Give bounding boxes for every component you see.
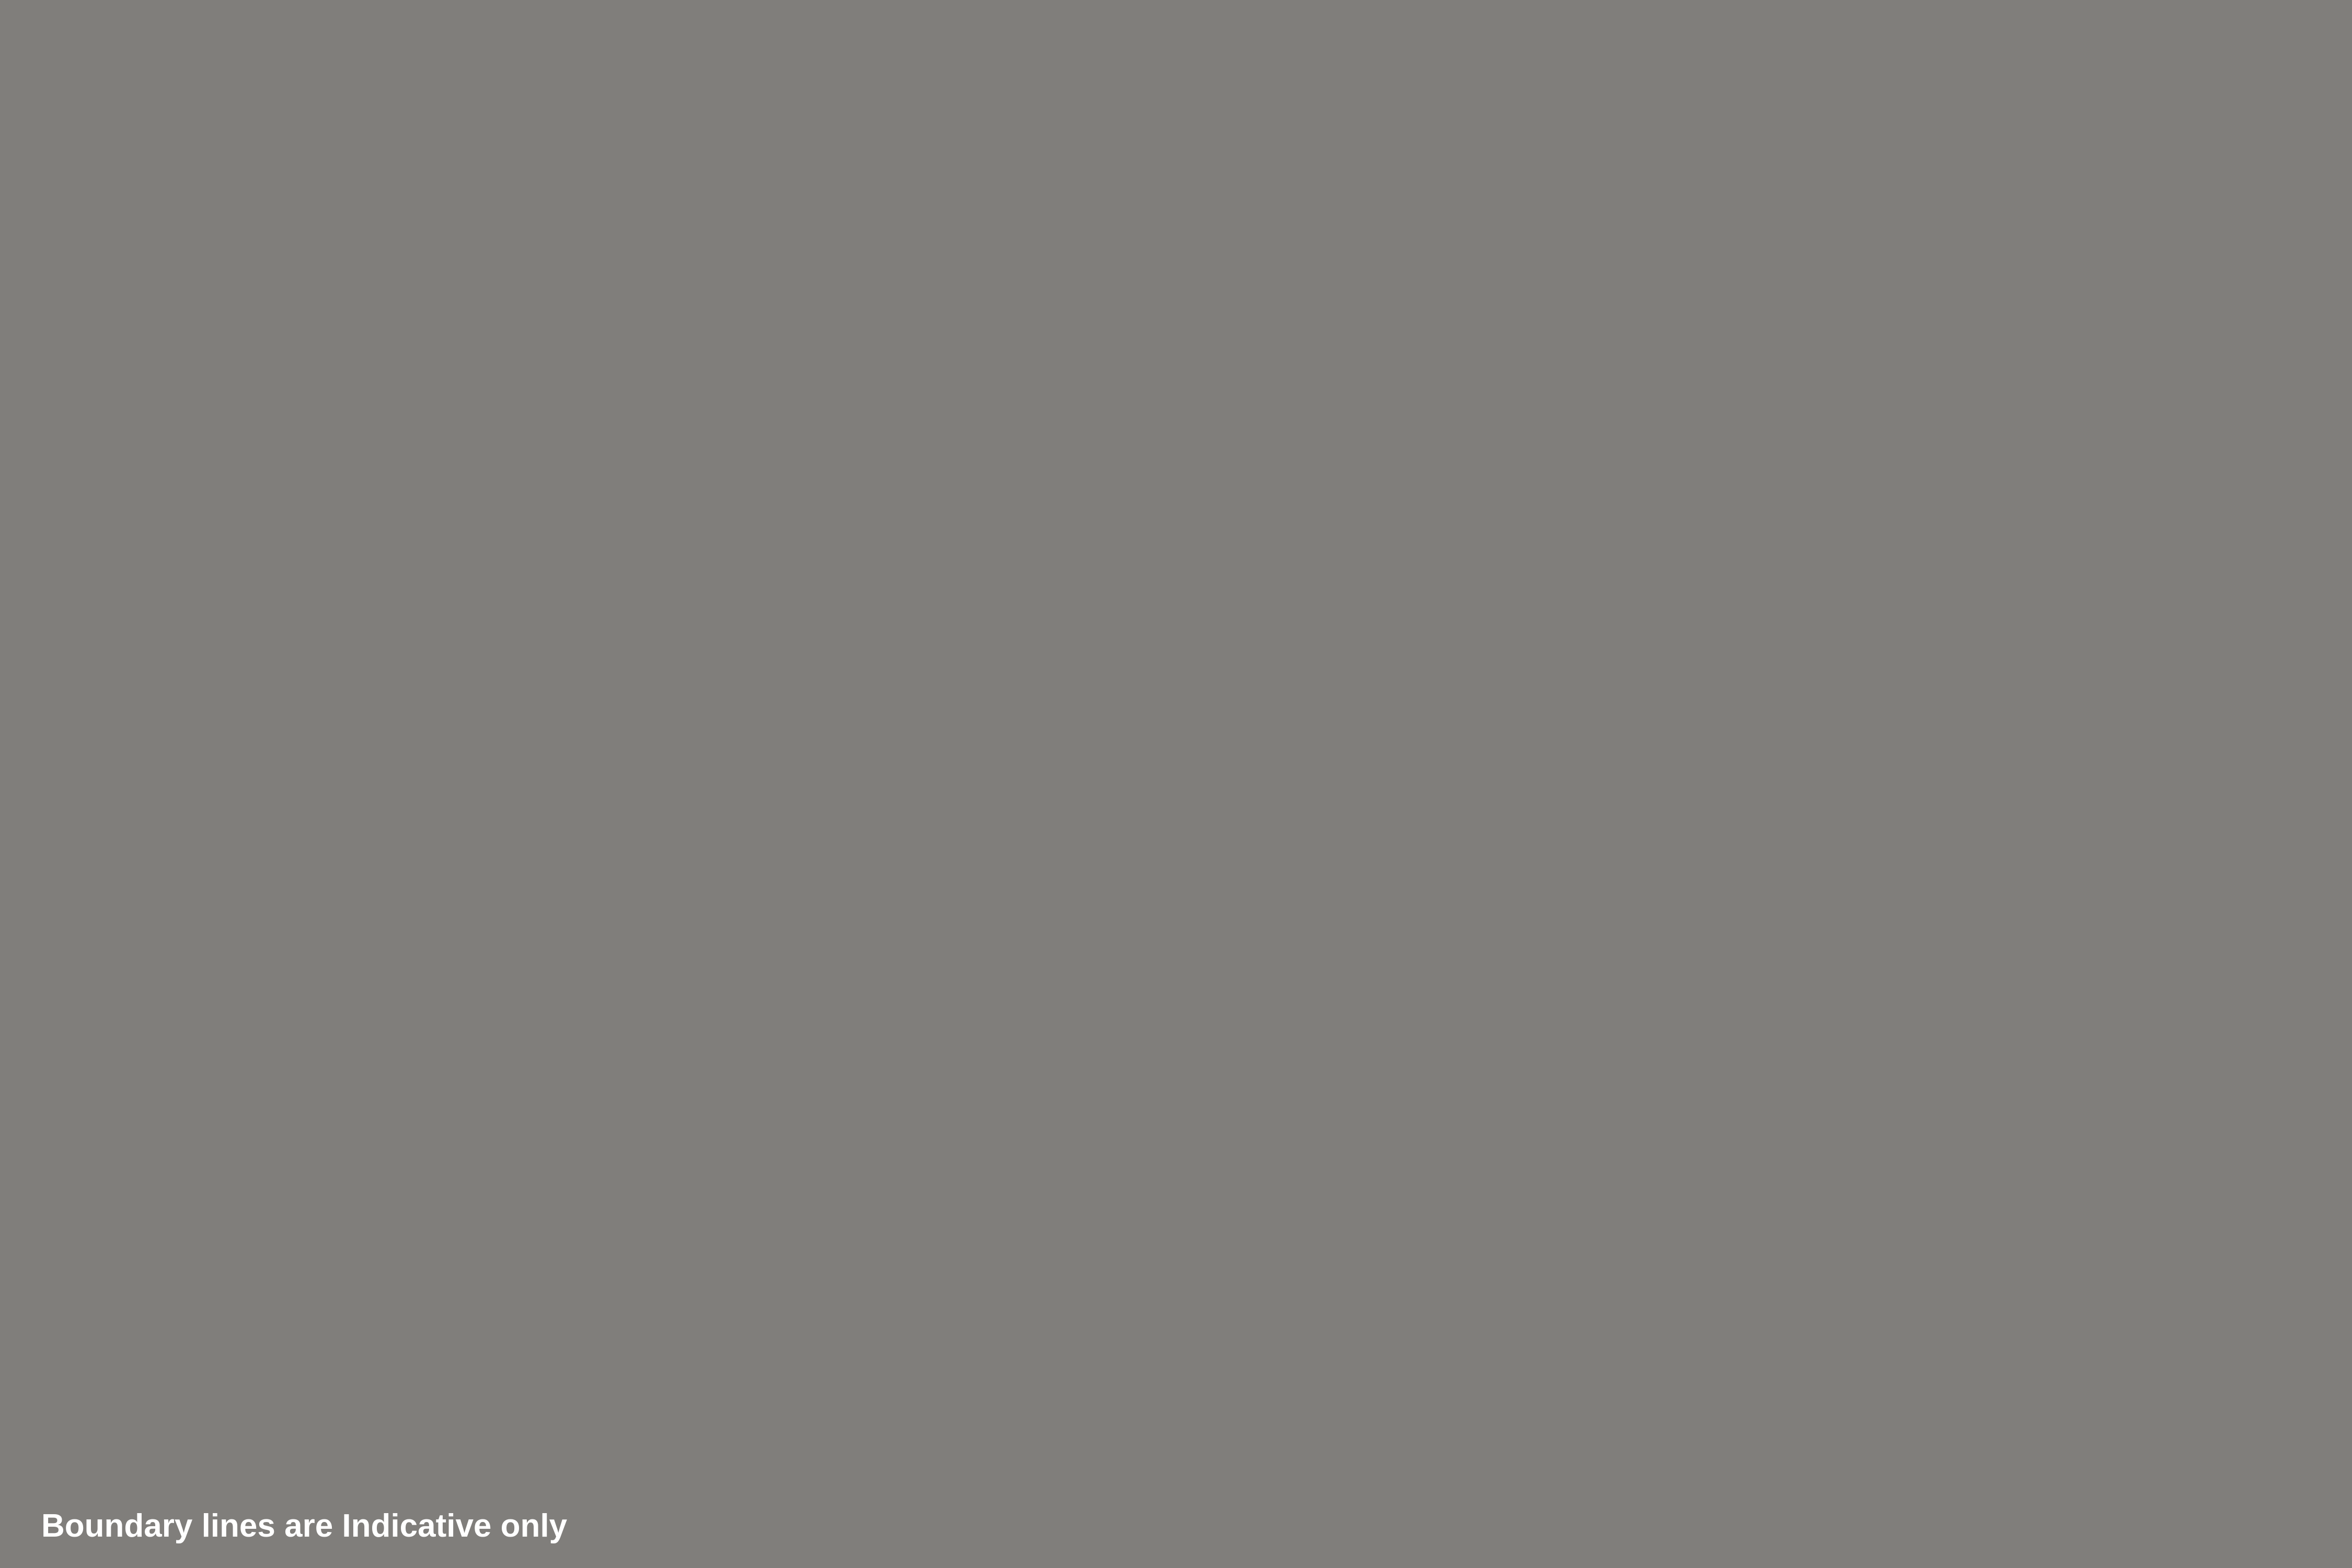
svg-text:Boundary lines are Indicative: Boundary lines are Indicative only bbox=[41, 1508, 568, 1544]
